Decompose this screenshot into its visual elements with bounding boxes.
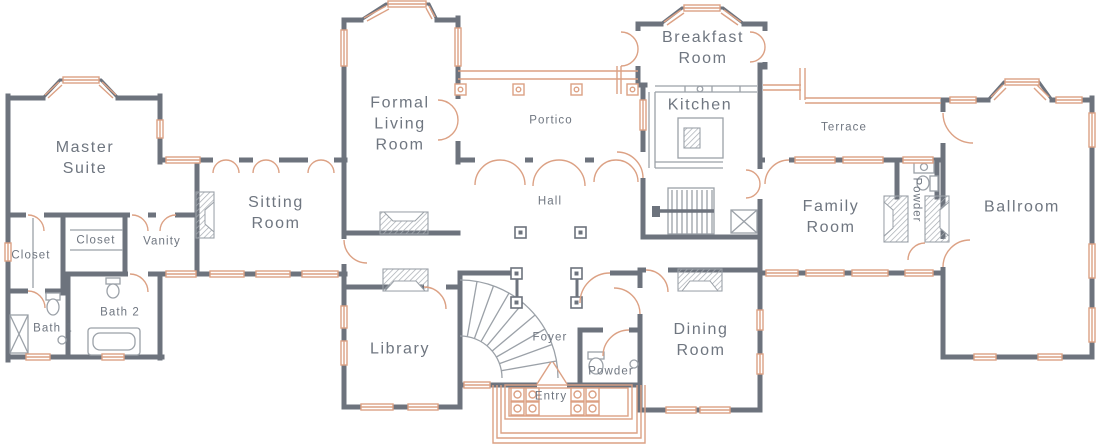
hall-columns bbox=[511, 227, 586, 308]
room-label-library: Library bbox=[370, 338, 430, 359]
dining-room-fireplace bbox=[678, 269, 722, 291]
formal-living-room-fireplace bbox=[380, 212, 428, 234]
floor-plan: Master Suite Closet Closet Vanity Bath 1… bbox=[0, 0, 1100, 446]
ballroom-fireplace bbox=[925, 196, 949, 242]
sitting-room-fireplace bbox=[196, 192, 214, 238]
entry-porch bbox=[493, 385, 645, 443]
room-label-kitchen: Kitchen bbox=[668, 94, 733, 115]
room-label-vanity: Vanity bbox=[143, 235, 181, 250]
room-label-breakfast-room: Breakfast Room bbox=[662, 27, 744, 69]
room-label-portico: Portico bbox=[529, 114, 573, 129]
room-label-closet-left: Closet bbox=[11, 249, 50, 264]
bay-window-walls-and-stubs bbox=[43, 4, 1052, 303]
room-label-entry: Entry bbox=[535, 390, 567, 405]
room-label-bath-1: Bath 1 bbox=[33, 322, 73, 337]
room-label-terrace: Terrace bbox=[821, 121, 867, 136]
portico-roof-and-columns bbox=[455, 71, 638, 95]
room-label-powder-family: Powder bbox=[909, 178, 924, 223]
room-label-foyer: Foyer bbox=[533, 331, 568, 346]
room-label-bath-2: Bath 2 bbox=[100, 306, 140, 321]
back-staircase bbox=[652, 188, 714, 234]
room-label-dining-room: Dining Room bbox=[674, 319, 729, 361]
elevator bbox=[731, 210, 757, 233]
room-label-hall: Hall bbox=[538, 195, 562, 210]
room-label-ballroom: Ballroom bbox=[984, 196, 1060, 217]
room-label-master-suite: Master Suite bbox=[56, 137, 115, 179]
terrace-edge-and-steps bbox=[617, 66, 941, 103]
family-room-fireplace bbox=[884, 196, 908, 242]
room-label-sitting-room: Sitting Room bbox=[248, 192, 304, 234]
grand-staircase bbox=[460, 280, 558, 378]
library-fireplace bbox=[383, 269, 428, 291]
room-label-powder-foyer: Powder bbox=[588, 365, 634, 380]
room-label-family-room: Family Room bbox=[803, 196, 860, 238]
room-label-closet-middle: Closet bbox=[76, 234, 115, 249]
floorplan-drawing bbox=[0, 0, 1100, 446]
room-label-formal-living-room: Formal Living Room bbox=[370, 92, 429, 155]
